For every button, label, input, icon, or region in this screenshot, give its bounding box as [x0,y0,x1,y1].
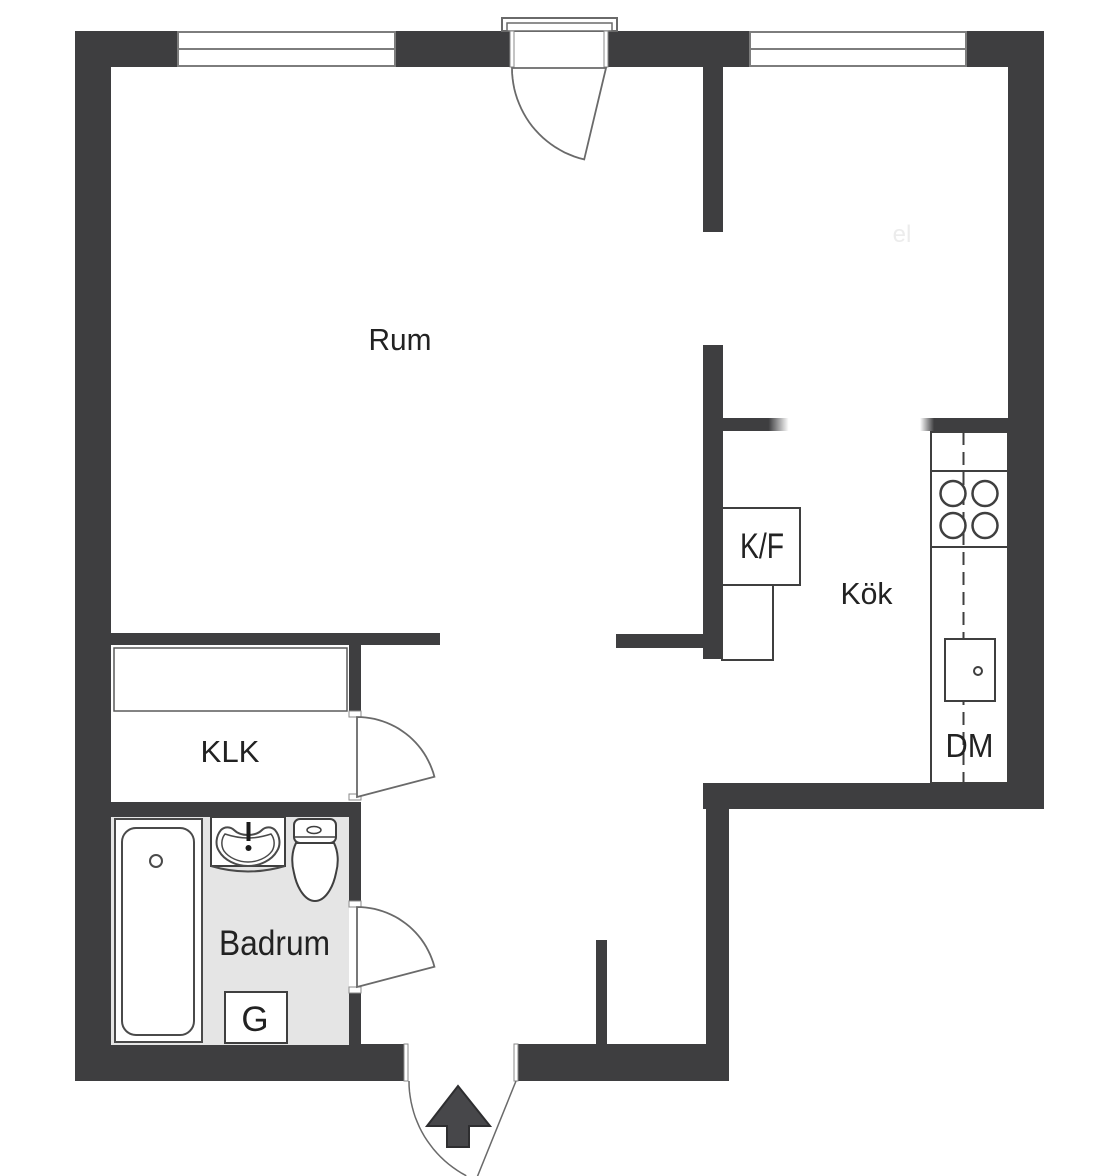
svg-text:el: el [893,221,912,248]
svg-text:Badrum: Badrum [219,924,330,963]
svg-text:DM: DM [946,727,994,764]
svg-text:KLK: KLK [201,734,260,769]
svg-text:Rum: Rum [369,322,432,357]
svg-text:Kök: Kök [841,576,893,611]
svg-text:G: G [241,1000,268,1039]
svg-text:K/F: K/F [740,527,784,566]
